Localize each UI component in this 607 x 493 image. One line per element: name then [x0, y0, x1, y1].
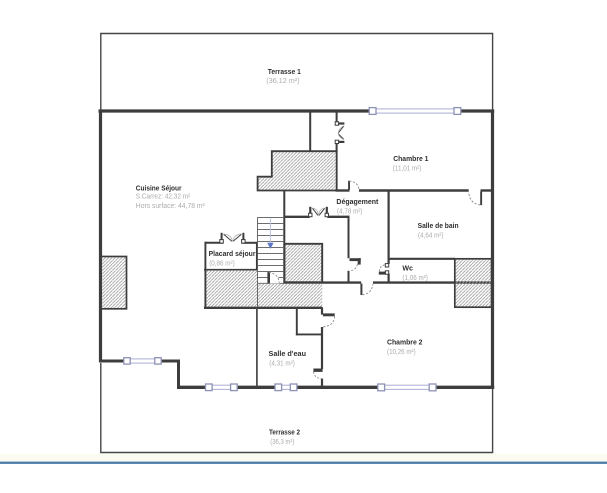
svg-text:Chambre 1: Chambre 1 — [393, 154, 428, 163]
svg-text:Chambre 2: Chambre 2 — [387, 337, 423, 346]
svg-text:Salle d'eau: Salle d'eau — [269, 349, 307, 358]
svg-text:(4,64 m²): (4,64 m²) — [418, 232, 444, 239]
svg-text:Dégagement: Dégagement — [336, 197, 379, 206]
svg-text:(4,31 m²): (4,31 m²) — [269, 361, 295, 368]
svg-text:Salle de bain: Salle de bain — [418, 221, 459, 230]
svg-text:(1,06 m²): (1,06 m²) — [402, 275, 428, 282]
svg-text:Cuisine Séjour: Cuisine Séjour — [136, 183, 182, 192]
svg-text:S.Carrez: 42,32 m²: S.Carrez: 42,32 m² — [136, 193, 191, 200]
svg-text:(0,86 m²): (0,86 m²) — [209, 261, 235, 268]
svg-text:(10,26 m²): (10,26 m²) — [387, 349, 416, 356]
svg-text:(36,12 m²): (36,12 m²) — [266, 78, 299, 85]
svg-text:(36,3 m²): (36,3 m²) — [270, 439, 294, 446]
svg-text:Wc: Wc — [402, 264, 413, 273]
svg-text:Hors surface: 44,78 m²: Hors surface: 44,78 m² — [136, 203, 206, 210]
svg-text:(4,78 m²): (4,78 m²) — [337, 209, 363, 216]
svg-text:Terrasse 1: Terrasse 1 — [268, 67, 301, 76]
svg-text:(11,01 m²): (11,01 m²) — [393, 165, 422, 172]
svg-text:Placard séjour: Placard séjour — [209, 249, 256, 258]
svg-text:Terrasse 2: Terrasse 2 — [269, 428, 300, 437]
